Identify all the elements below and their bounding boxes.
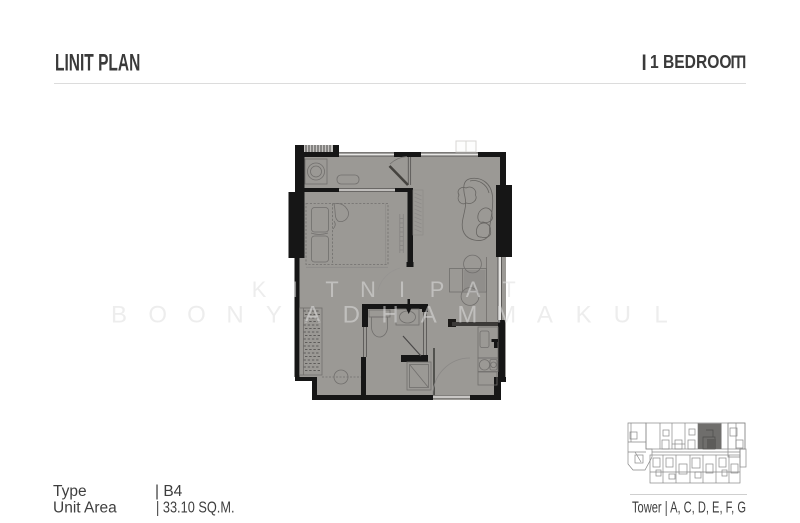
svg-text:Tower | A, C, D, E, F, G: Tower | A, C, D, E, F, G (632, 500, 746, 517)
svg-text:1 BEDROO: 1 BEDROO (650, 51, 732, 72)
svg-text:Unit Area: Unit Area (53, 500, 117, 517)
svg-text:BOONYADHAMMAKUL: BOONYADHAMMAKUL (111, 302, 668, 329)
svg-text:| 33.10 SQ.M.: | 33.10 SQ.M. (156, 500, 235, 517)
svg-text:LINIT PLAN: LINIT PLAN (55, 49, 140, 76)
svg-text:| B4: | B4 (155, 483, 183, 500)
svg-text:Type: Type (53, 483, 87, 500)
